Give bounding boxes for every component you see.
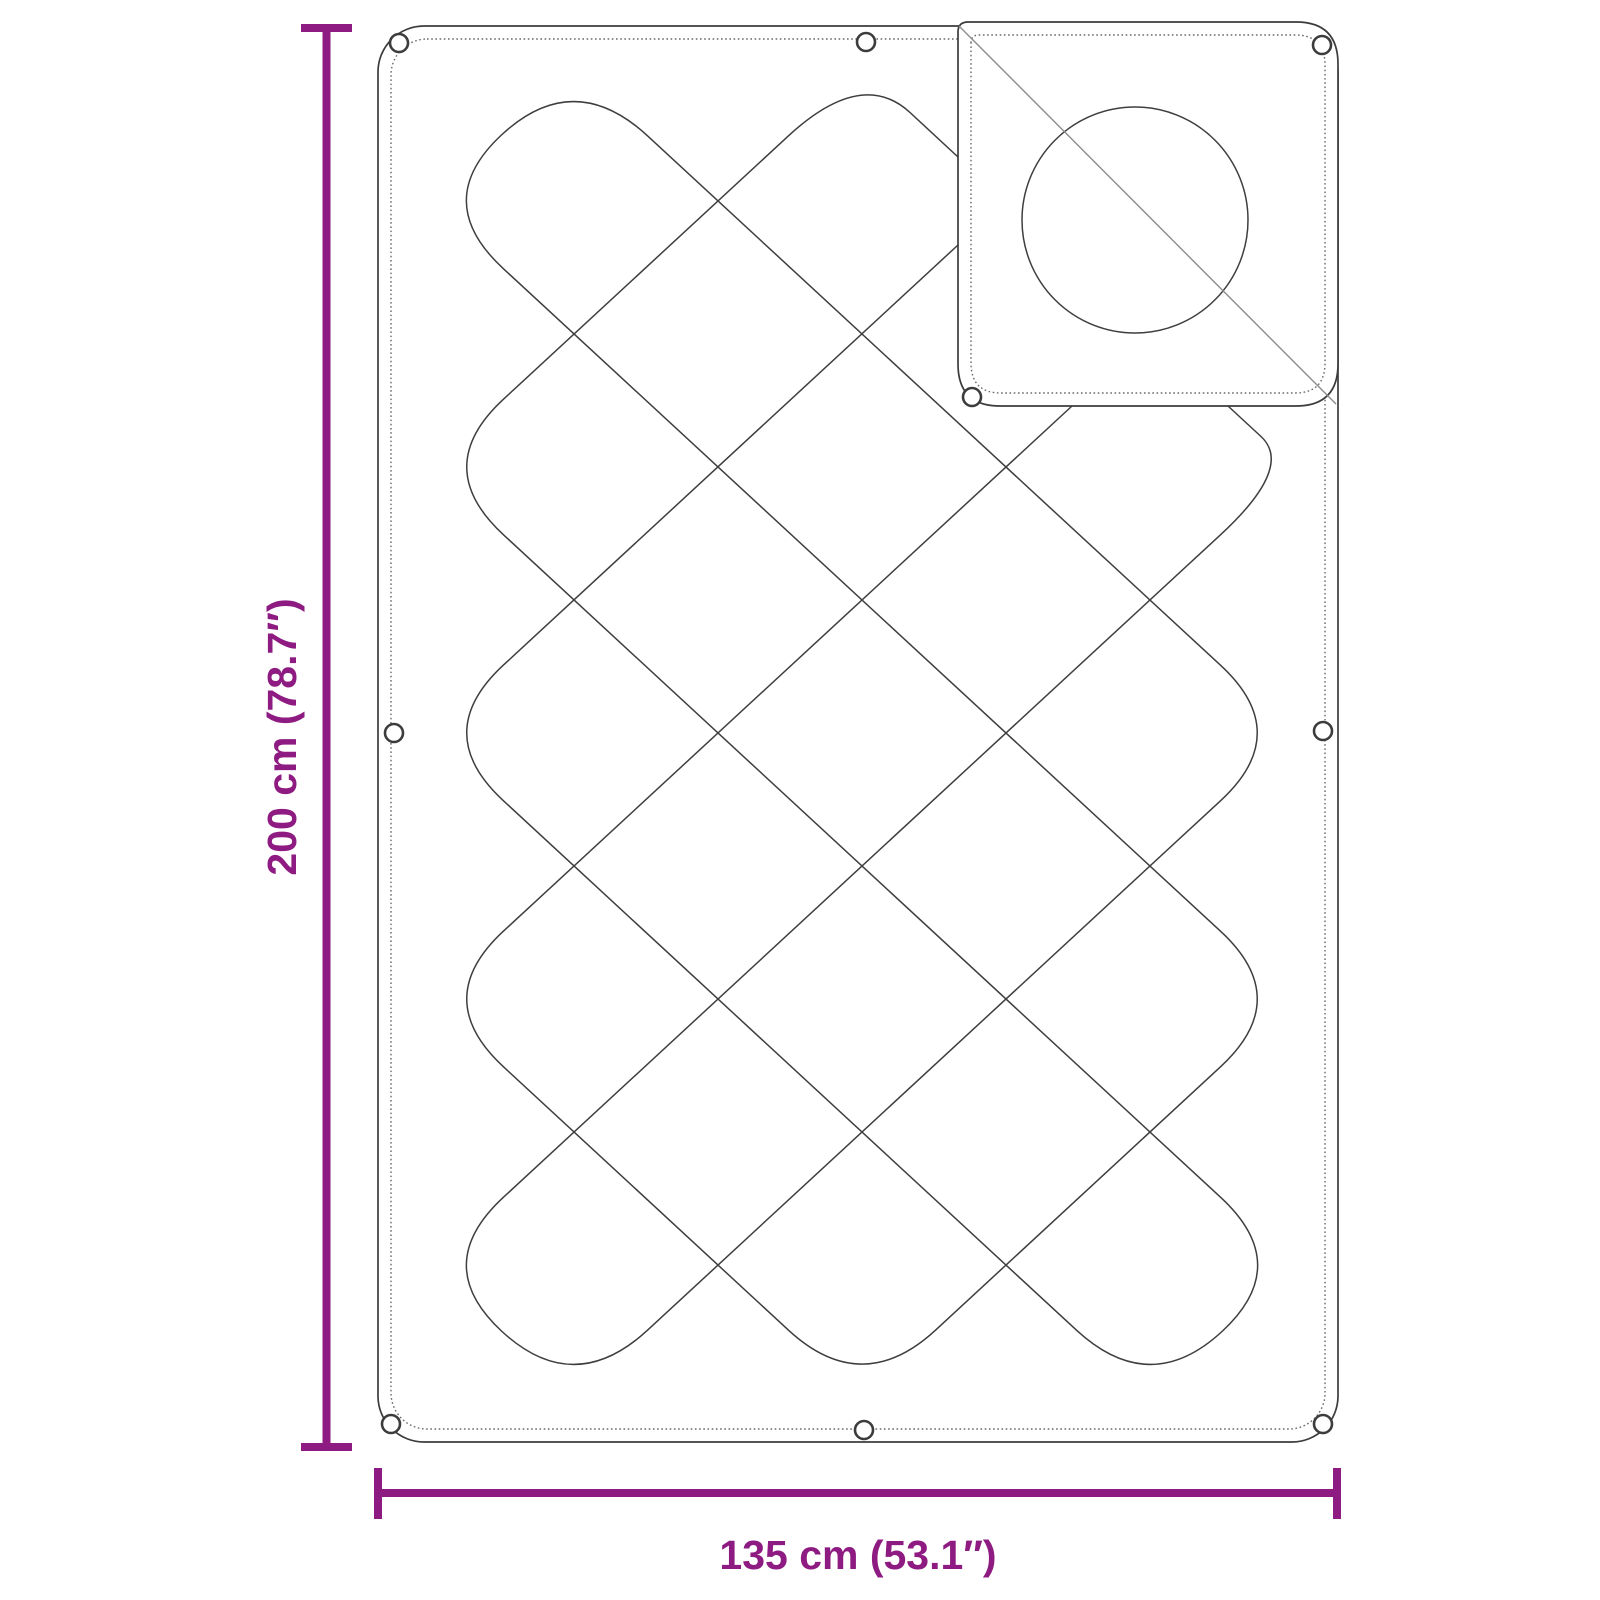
dimension-diagram: 200 cm (78.7″) 135 cm (53.1″) — [0, 0, 1600, 1600]
height-dimension — [301, 28, 352, 1447]
width-dimension — [378, 1468, 1337, 1519]
width-dimension-label: 135 cm (53.1″) — [719, 1532, 996, 1578]
grommet — [385, 724, 403, 742]
diagram-svg: 200 cm (78.7″) 135 cm (53.1″) — [0, 0, 1600, 1600]
grommet — [382, 1415, 400, 1433]
grommet — [857, 33, 875, 51]
grommet — [963, 388, 981, 406]
grommet — [1314, 722, 1332, 740]
pillow — [958, 22, 1338, 406]
grommet — [1314, 1415, 1332, 1433]
grommet — [1313, 36, 1331, 54]
height-dimension-label: 200 cm (78.7″) — [259, 598, 305, 875]
grommet — [390, 34, 408, 52]
grommet — [855, 1421, 873, 1439]
